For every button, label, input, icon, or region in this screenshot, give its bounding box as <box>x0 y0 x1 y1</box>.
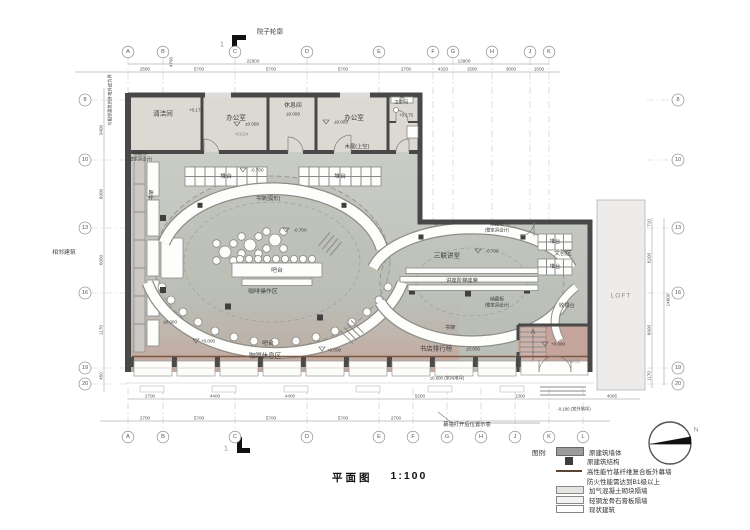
storage-label-3b: (整家具设计) <box>485 302 510 309</box>
north-label: N <box>694 427 699 434</box>
column <box>160 287 166 293</box>
level-cleaning: +0.175 <box>189 108 204 113</box>
boundary-note: 与相邻建筑的外墙外皮为界 <box>107 74 114 126</box>
dim-top-4: 2700 <box>401 67 412 72</box>
grid-left-13: 13 <box>82 225 88 231</box>
dim-top-6: 1580 <box>467 67 478 72</box>
room-bath: 卫生间 <box>394 99 408 106</box>
dim-top-total-right: 13900 <box>458 59 471 64</box>
level-lecture: -0.700 <box>485 249 498 254</box>
wood-house-label: 木屋(上空) <box>345 142 370 150</box>
level-stair-room: +0.000 <box>551 342 566 347</box>
dim-left-extra: 4790 <box>169 56 174 67</box>
title-label: 平面图 <box>332 470 373 485</box>
grid-left-8: 8 <box>83 97 86 103</box>
dim-bottom-upper-4: 1300 <box>515 394 526 399</box>
dim-right-3: 1170 <box>647 371 652 381</box>
stairs <box>520 327 546 363</box>
legend-swatch-steel-gypsum <box>556 496 584 504</box>
dim-top-2: 5700 <box>266 67 277 72</box>
dim-left-1: 3400 <box>99 124 104 135</box>
grid-right-19: 19 <box>675 365 681 371</box>
dim-top-0: 2580 <box>140 67 151 72</box>
level-ranking: ±0.000 <box>466 347 480 352</box>
grid-bottom-d: D <box>305 434 309 440</box>
bar-label-1: 吧台 <box>271 266 283 274</box>
storage-label-2b: (整家具设计) <box>485 227 510 234</box>
side-counter <box>161 238 183 278</box>
legend-swatch-curtain-wall <box>556 470 582 473</box>
dim-bottom-upper-3: 5200 <box>415 394 426 399</box>
dim-right-1: 6200 <box>647 252 652 263</box>
legend-swatch-structure <box>565 457 573 465</box>
section-number-top: 1 <box>220 40 224 49</box>
curtain-open-note: 幕墙打开后位置示意 <box>443 420 491 428</box>
adjacent-building-label: 相邻建筑 <box>52 248 76 256</box>
dim-left-3: 6000 <box>99 254 104 265</box>
bookshelf-arc-label: 书架(弧形) <box>256 194 281 202</box>
grid-bottom-c: C <box>233 434 237 440</box>
legend-swatch-spacer <box>556 477 582 484</box>
legend-label-aerated-block: 加气混凝土砌块隔墙 <box>589 485 648 495</box>
legend: 图例: 原建筑墙体 原建筑结构 高性能竹基纤维复合板外幕墙 防火性能需达到B1级… <box>532 447 672 514</box>
dim-top-1: 5700 <box>194 67 205 72</box>
level-bath: +0.175 <box>399 113 414 118</box>
coffee-prep-label: 咖啡操作区 <box>248 287 278 295</box>
storage-label-2a: 储藏柜 <box>490 221 504 228</box>
courtyard-label: 院子轮廓 <box>257 27 284 36</box>
display-table-label-3: 堆台 <box>550 237 561 245</box>
grid-top-h: H <box>490 49 494 55</box>
drawing-title: 平面图 1:100 <box>332 470 427 485</box>
level-lounge-1: +0.000 <box>201 339 216 344</box>
dim-bottom-lower-0: 2700 <box>140 416 151 421</box>
dim-left-2: 6000 <box>99 188 104 199</box>
grid-left-19: 19 <box>82 365 88 371</box>
grid-top-k: K <box>547 49 551 55</box>
level-indoor: ±0.000 (室内地坪) <box>430 375 465 382</box>
dim-bottom-lower-4: 2700 <box>391 416 402 421</box>
dim-top-3: 5700 <box>338 67 349 72</box>
storage-cabinet <box>134 156 145 352</box>
grid-top-j: J <box>529 49 532 55</box>
dim-top-7: 3000 <box>506 67 517 72</box>
door-tag-m1832: M1832 <box>567 359 581 364</box>
dim-left-0: 450 <box>99 372 104 380</box>
section-number-bottom: 1 <box>224 444 228 453</box>
grid-top-a: A <box>126 49 130 55</box>
room-rest: 休息间 <box>284 101 302 109</box>
legend-title: 图例: <box>532 447 556 457</box>
cashier-label: 收银台 <box>559 301 575 309</box>
display-table-label-4: 堆台 <box>550 262 561 270</box>
lecture-seats-label: 讲座阶梯座席 <box>446 276 478 284</box>
grid-top-c: C <box>233 49 237 55</box>
dim-bottom-lower-3: 5700 <box>338 416 349 421</box>
grid-right-10: 10 <box>675 157 681 163</box>
grid-bottom-h: H <box>479 434 483 440</box>
loft-label: LOFT <box>611 293 632 300</box>
ranking-label: 书店排行榜 <box>420 344 453 353</box>
display-table-label-1: 堆台 <box>220 172 232 180</box>
legend-label-steel-gypsum: 轻钢龙骨石膏板隔墙 <box>589 495 648 505</box>
room-cleaning: 清洁间 <box>153 109 173 118</box>
grid-bottom-j: J <box>514 434 517 440</box>
column <box>160 215 166 221</box>
grid-top-d: D <box>305 49 309 55</box>
door-tag-m1024: M1024 <box>235 132 249 137</box>
grid-bottom-l: L <box>581 434 584 440</box>
lecture-bench <box>406 268 538 274</box>
dim-top-8: 1500 <box>534 67 545 72</box>
grid-right-8: 8 <box>676 97 679 103</box>
storage-label-1b: (整家具设计) <box>128 156 153 163</box>
coffee-lounge-label: 咖啡休息区 <box>249 351 282 360</box>
legend-swatch-aerated-block <box>556 486 584 494</box>
grid-top-e: E <box>377 49 381 55</box>
dim-top-total-left: 22900 <box>247 59 260 64</box>
floor-plan-canvas: 1 1 A B C D E F G H J K A B C D E F G H … <box>0 0 750 530</box>
shower <box>407 126 418 138</box>
grid-right-20: 20 <box>675 381 681 387</box>
grid-right-13: 13 <box>675 225 681 231</box>
grid-bottom-e: E <box>377 434 381 440</box>
level-office-2: ±0.000 <box>334 120 348 125</box>
dim-bottom-upper-2: 4400 <box>285 394 296 399</box>
bookshelf-label-lecture: 书架 <box>445 323 456 331</box>
grid-right-16: 16 <box>675 290 681 296</box>
grid-bottom-k: K <box>547 434 551 440</box>
toilet <box>394 108 399 113</box>
grid-left-16: 16 <box>82 290 88 296</box>
bar-label-2: 吧台 <box>262 339 274 347</box>
dim-bottom-upper-1: 4400 <box>210 394 221 399</box>
grid-bottom-g: G <box>445 434 449 440</box>
dim-bottom-upper-5: 4095 <box>607 394 618 399</box>
bookshelf-label-left: 书架 <box>147 189 155 200</box>
legend-swatch-existing <box>556 505 584 513</box>
level-hall-1: -0.700 <box>250 168 263 173</box>
dim-left-4: 1170 <box>99 325 104 335</box>
level-hall-2: ±0.000 <box>163 320 177 325</box>
title-scale: 1:100 <box>391 470 428 485</box>
level-lounge-2: +0.000 <box>327 348 342 353</box>
storefront-bays <box>126 356 594 395</box>
dim-bottom-upper-0: 2700 <box>145 394 156 399</box>
window-segment <box>205 93 231 98</box>
dim-right-2: 6000 <box>647 324 652 335</box>
room-office-1: 办公室 <box>226 113 246 122</box>
lecture-label: 三联讲堂 <box>434 251 461 260</box>
legend-label-existing: 现状建筑 <box>589 504 615 514</box>
grid-bottom-b: B <box>161 434 165 440</box>
level-coffee: -0.700 <box>293 228 306 233</box>
level-office-1: ±0.000 <box>245 122 259 127</box>
dim-bottom-lower-1: 5700 <box>194 416 205 421</box>
grid-bottom-a: A <box>126 434 130 440</box>
window-segment <box>340 93 370 98</box>
storage-label-3a: 储藏柜 <box>490 296 504 303</box>
legend-swatch-original-wall <box>556 447 584 456</box>
grid-left-10: 10 <box>82 157 88 163</box>
legend-label-structure: 原建筑结构 <box>587 456 620 466</box>
level-outdoor: -0.180 (室外地坪) <box>557 406 591 413</box>
dim-bottom-lower-2: 5700 <box>266 416 277 421</box>
grid-left-20: 20 <box>82 381 88 387</box>
legend-label-fire-note: 防火性能需达到B1级以上 <box>587 476 660 486</box>
legend-label-original-wall: 原建筑墙体 <box>589 447 622 457</box>
legend-label-curtain-wall: 高性能竹基纤维复合板外幕墙 <box>587 466 672 476</box>
cultural-zone-label: 文创区 <box>554 249 572 257</box>
dim-right-total: 14600 <box>666 293 671 306</box>
level-rest: ±0.000 <box>286 112 300 117</box>
dim-right-0: 710 <box>647 219 652 227</box>
grid-top-g: G <box>451 49 455 55</box>
dim-top-5: 4320 <box>438 67 449 72</box>
grid-top-b: B <box>161 49 165 55</box>
display-table-label-2: 堆台 <box>334 172 346 180</box>
storage-label-1a: 储藏柜 <box>133 150 147 157</box>
